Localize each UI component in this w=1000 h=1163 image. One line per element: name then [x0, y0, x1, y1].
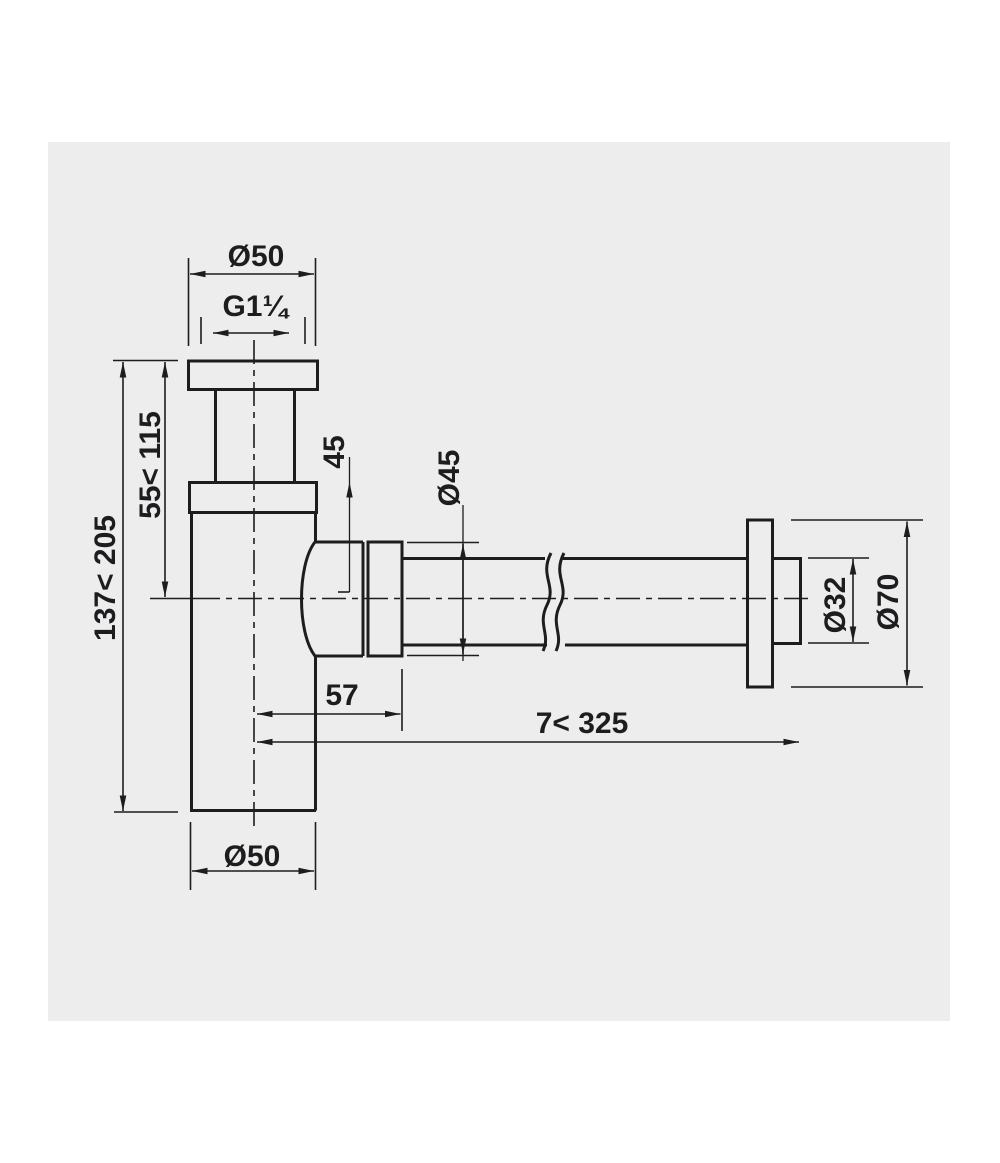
- label-center-to-nut-face: 57: [325, 679, 358, 712]
- bottle-trap-drawing: Ø50 G1¼ 55< 115 137< 205 45 Ø45 Ø32 Ø70 …: [0, 0, 1000, 1163]
- label-inlet-diameter: Ø50: [228, 240, 285, 273]
- label-inlet-to-outlet-height: 55< 115: [134, 411, 167, 519]
- label-outlet-offset: 45: [318, 435, 351, 468]
- label-pipe-diameter: Ø32: [819, 577, 852, 634]
- page: Ø50 G1¼ 55< 115 137< 205 45 Ø45 Ø32 Ø70 …: [0, 0, 1000, 1163]
- label-body-diameter: Ø50: [224, 840, 281, 873]
- label-total-height: 137< 205: [89, 515, 122, 641]
- drawing-panel: [48, 142, 950, 1021]
- label-thread: G1¼: [222, 290, 290, 323]
- label-wall-tube-range: 7< 325: [536, 707, 629, 740]
- label-rosette-diameter: Ø70: [872, 574, 905, 631]
- label-nut-diameter: Ø45: [433, 450, 466, 507]
